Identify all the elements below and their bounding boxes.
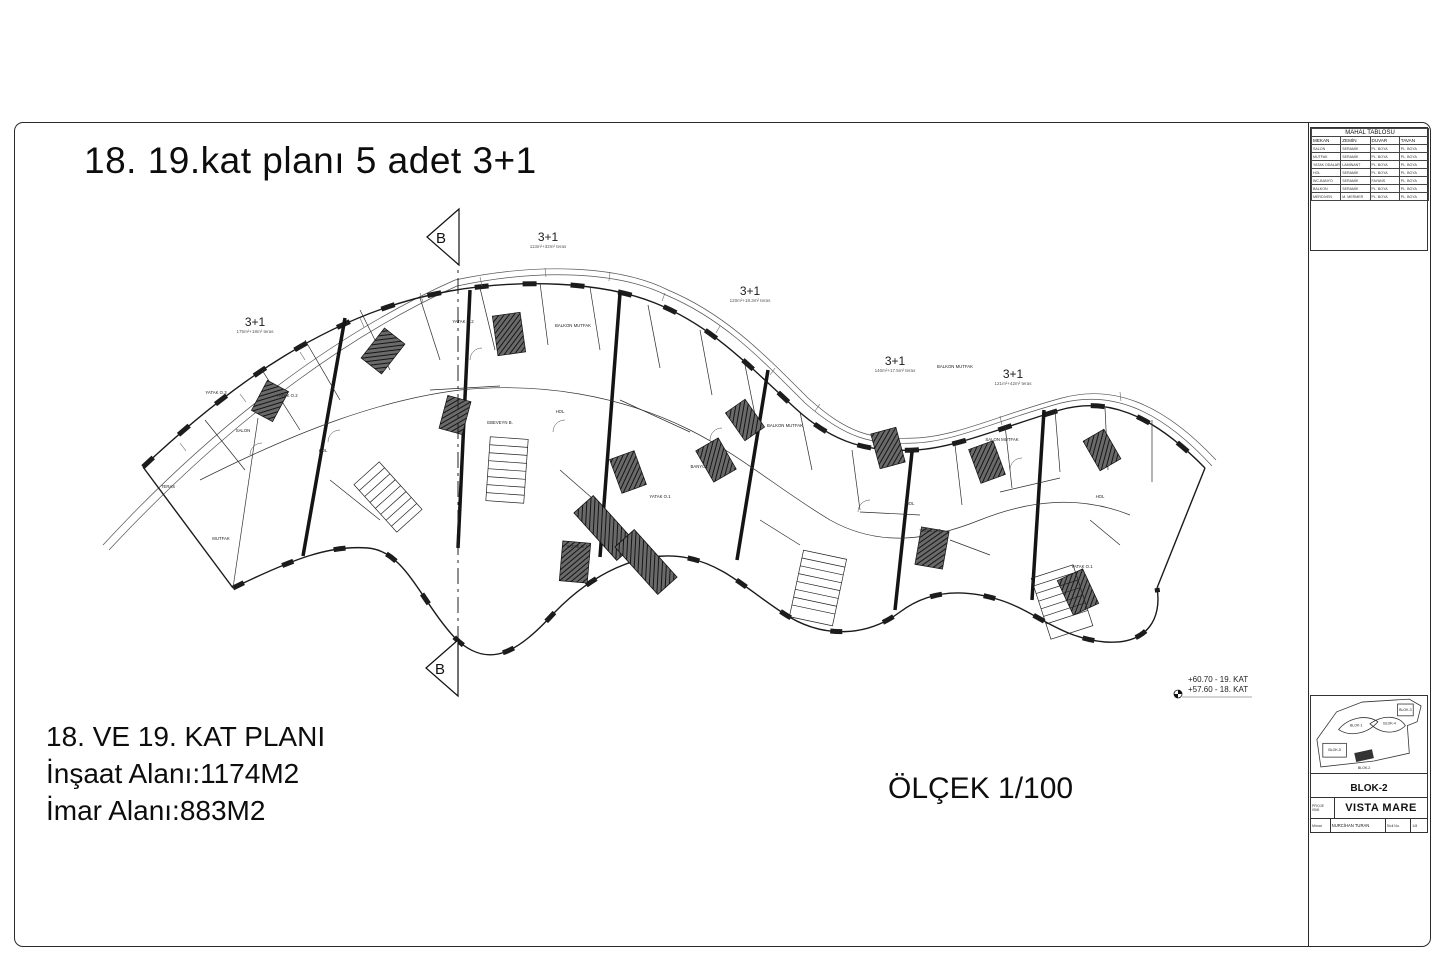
- architect-label: Mimar: [1311, 819, 1331, 832]
- room-label: SALON: [236, 428, 251, 433]
- keyplan-label: BLOK-5: [1328, 748, 1341, 752]
- architect-name: NURCİHAN TURAN: [1331, 819, 1386, 832]
- mahal-cell: PL. BOYA: [1399, 177, 1428, 185]
- unit-label-1: 3+1 175m²+18m² teras: [237, 315, 274, 334]
- mahal-table-box: MAHAL TABLOSU MEKANZEMİNDUVARTAVAN SALON…: [1310, 127, 1428, 251]
- registration-label: Sicil No.: [1386, 819, 1412, 832]
- mahal-cell: PL. BOYA: [1370, 169, 1399, 177]
- mahal-cell: PL. BOYA: [1370, 153, 1399, 161]
- room-label: BALKON MUTFAK: [937, 364, 973, 369]
- mahal-column-header: TAVAN: [1399, 137, 1428, 145]
- mahal-cell: FAYANS: [1370, 177, 1399, 185]
- mahal-column-header: ZEMİN: [1341, 137, 1370, 145]
- keyplan-label: BLOK-3: [1399, 708, 1412, 712]
- project-name: VISTA MARE: [1335, 798, 1427, 818]
- unit-type: 3+1: [875, 354, 916, 368]
- unit-label-4: 3+1 140m²+17.5m² teras: [875, 354, 916, 373]
- unit-type: 3+1: [995, 367, 1032, 381]
- room-label: HOL: [319, 448, 328, 453]
- room-label: MUTFAK: [212, 536, 230, 541]
- room-label: HOL: [1096, 494, 1105, 499]
- unit-area: 113m²+32m² teras: [530, 244, 567, 249]
- room-label: BALKON MUTFAK: [767, 423, 803, 428]
- room-label: HOL: [906, 501, 915, 506]
- unit-type: 3+1: [730, 284, 771, 298]
- registration-value: 1/8: [1411, 819, 1427, 832]
- mahal-row: HOLSERAMİKPL. BOYAPL. BOYA: [1312, 169, 1429, 177]
- dimension-ticks: [180, 268, 1121, 451]
- mahal-cell: PL. BOYA: [1399, 193, 1428, 201]
- room-label: TERAS: [161, 484, 175, 489]
- mahal-cell: LAMİNANT: [1341, 161, 1370, 169]
- site-keyplan: BLOK-1 BLOK-4 BLOK-3 BLOK-5 BLOK-2: [1311, 696, 1427, 774]
- elevation-line-1: +60.70 - 19. KAT: [1188, 675, 1248, 685]
- mahal-table: MAHAL TABLOSU MEKANZEMİNDUVARTAVAN SALON…: [1311, 128, 1429, 201]
- mahal-cell: PL. BOYA: [1399, 169, 1428, 177]
- keyplan-label: BLOK-1: [1350, 724, 1363, 728]
- unit-label-2: 3+1 113m²+32m² teras: [530, 230, 567, 249]
- floor-plan-drawing: B B TERASSALONMUTFAKYATAK O.3YATAK O.2HO…: [0, 0, 1440, 960]
- room-label: HOL: [556, 409, 565, 414]
- room-label: YATAK O.1: [566, 544, 588, 549]
- room-label: YATAK O.2: [276, 393, 298, 398]
- elevation-line-2: +57.60 - 18. KAT: [1188, 685, 1248, 695]
- room-label: YATAK O.1: [649, 494, 671, 499]
- mahal-cell: M. MERMER: [1341, 193, 1370, 201]
- keyplan-label: BLOK-4: [1383, 722, 1396, 726]
- mahal-cell: WC-BANYO: [1312, 177, 1341, 185]
- mahal-cell: SALON: [1312, 145, 1341, 153]
- mahal-column-header: MEKAN: [1312, 137, 1341, 145]
- mahal-cell: MUTFAK: [1312, 153, 1341, 161]
- room-label: YATAK O.2: [452, 319, 474, 324]
- keyplan-current-block: [1354, 749, 1374, 762]
- mahal-cell: YATAK ODALARI: [1312, 161, 1341, 169]
- unit-type: 3+1: [530, 230, 567, 244]
- room-label: BANYO: [690, 464, 706, 469]
- mahal-cell: PL. BOYA: [1370, 161, 1399, 169]
- section-label-bottom: B: [435, 661, 445, 678]
- mahal-cell: MERDİVEN: [1312, 193, 1341, 201]
- room-label: YATAK O.2: [919, 528, 941, 533]
- mahal-cell: SERAMİK: [1341, 185, 1370, 193]
- keyplan-label: BLOK-2: [1358, 766, 1371, 770]
- unit-area: 140m²+17.5m² teras: [875, 368, 916, 373]
- unit-area: 121m²+42m² teras: [995, 381, 1032, 386]
- room-label: YATAK O.3: [205, 390, 227, 395]
- mahal-column-header: DUVAR: [1370, 137, 1399, 145]
- mahal-row: SALONSERAMİKPL. BOYAPL. BOYA: [1312, 145, 1429, 153]
- unit-label-5: 3+1 121m²+42m² teras: [995, 367, 1032, 386]
- project-label: PROJE İSMİ: [1311, 798, 1335, 818]
- mahal-row: BALKONSERAMİKPL. BOYAPL. BOYA: [1312, 185, 1429, 193]
- mahal-cell: PL. BOYA: [1370, 145, 1399, 153]
- mahal-row: WC-BANYOSERAMİKFAYANSPL. BOYA: [1312, 177, 1429, 185]
- mahal-cell: SERAMİK: [1341, 145, 1370, 153]
- unit-area: 120m²+18.3m² teras: [730, 298, 771, 303]
- room-label: SALON MUTFAK: [985, 437, 1018, 442]
- project-label-line2: İSMİ: [1312, 808, 1334, 813]
- unit-type: 3+1: [237, 315, 274, 329]
- mahal-row: MERDİVENM. MERMERPL. BOYAPL. BOYA: [1312, 193, 1429, 201]
- room-label: YATAK O.1: [1071, 564, 1093, 569]
- project-row: PROJE İSMİ VISTA MARE: [1311, 798, 1427, 819]
- section-label-top: B: [436, 230, 446, 247]
- title-block: BLOK-1 BLOK-4 BLOK-3 BLOK-5 BLOK-2 BLOK-…: [1310, 695, 1428, 833]
- mahal-cell: PL. BOYA: [1370, 185, 1399, 193]
- room-label: EBEVEYN B.: [487, 420, 513, 425]
- block-name: BLOK-2: [1311, 779, 1427, 798]
- mahal-cell: SERAMİK: [1341, 169, 1370, 177]
- mahal-cell: BALKON: [1312, 185, 1341, 193]
- mahal-cell: HOL: [1312, 169, 1341, 177]
- mahal-cell: SERAMİK: [1341, 177, 1370, 185]
- unit-label-3: 3+1 120m²+18.3m² teras: [730, 284, 771, 303]
- mahal-cell: PL. BOYA: [1399, 145, 1428, 153]
- mahal-row: MUTFAKSERAMİKPL. BOYAPL. BOYA: [1312, 153, 1429, 161]
- mahal-cell: PL. BOYA: [1399, 185, 1428, 193]
- bed-symbols: [251, 312, 1120, 615]
- room-label: BALKON MUTFAK: [555, 323, 591, 328]
- mahal-cell: PL. BOYA: [1399, 161, 1428, 169]
- unit-area: 175m²+18m² teras: [237, 329, 274, 334]
- mahal-row: YATAK ODALARILAMİNANTPL. BOYAPL. BOYA: [1312, 161, 1429, 169]
- mahal-cell: SERAMİK: [1341, 153, 1370, 161]
- mahal-cell: PL. BOYA: [1399, 153, 1428, 161]
- architect-row: Mimar NURCİHAN TURAN Sicil No. 1/8: [1311, 819, 1427, 832]
- mahal-table-body: SALONSERAMİKPL. BOYAPL. BOYAMUTFAKSERAMİ…: [1312, 145, 1429, 201]
- mahal-cell: PL. BOYA: [1370, 193, 1399, 201]
- mahal-table-title: MAHAL TABLOSU: [1312, 129, 1429, 137]
- elevation-note: +60.70 - 19. KAT +57.60 - 18. KAT: [1188, 675, 1248, 695]
